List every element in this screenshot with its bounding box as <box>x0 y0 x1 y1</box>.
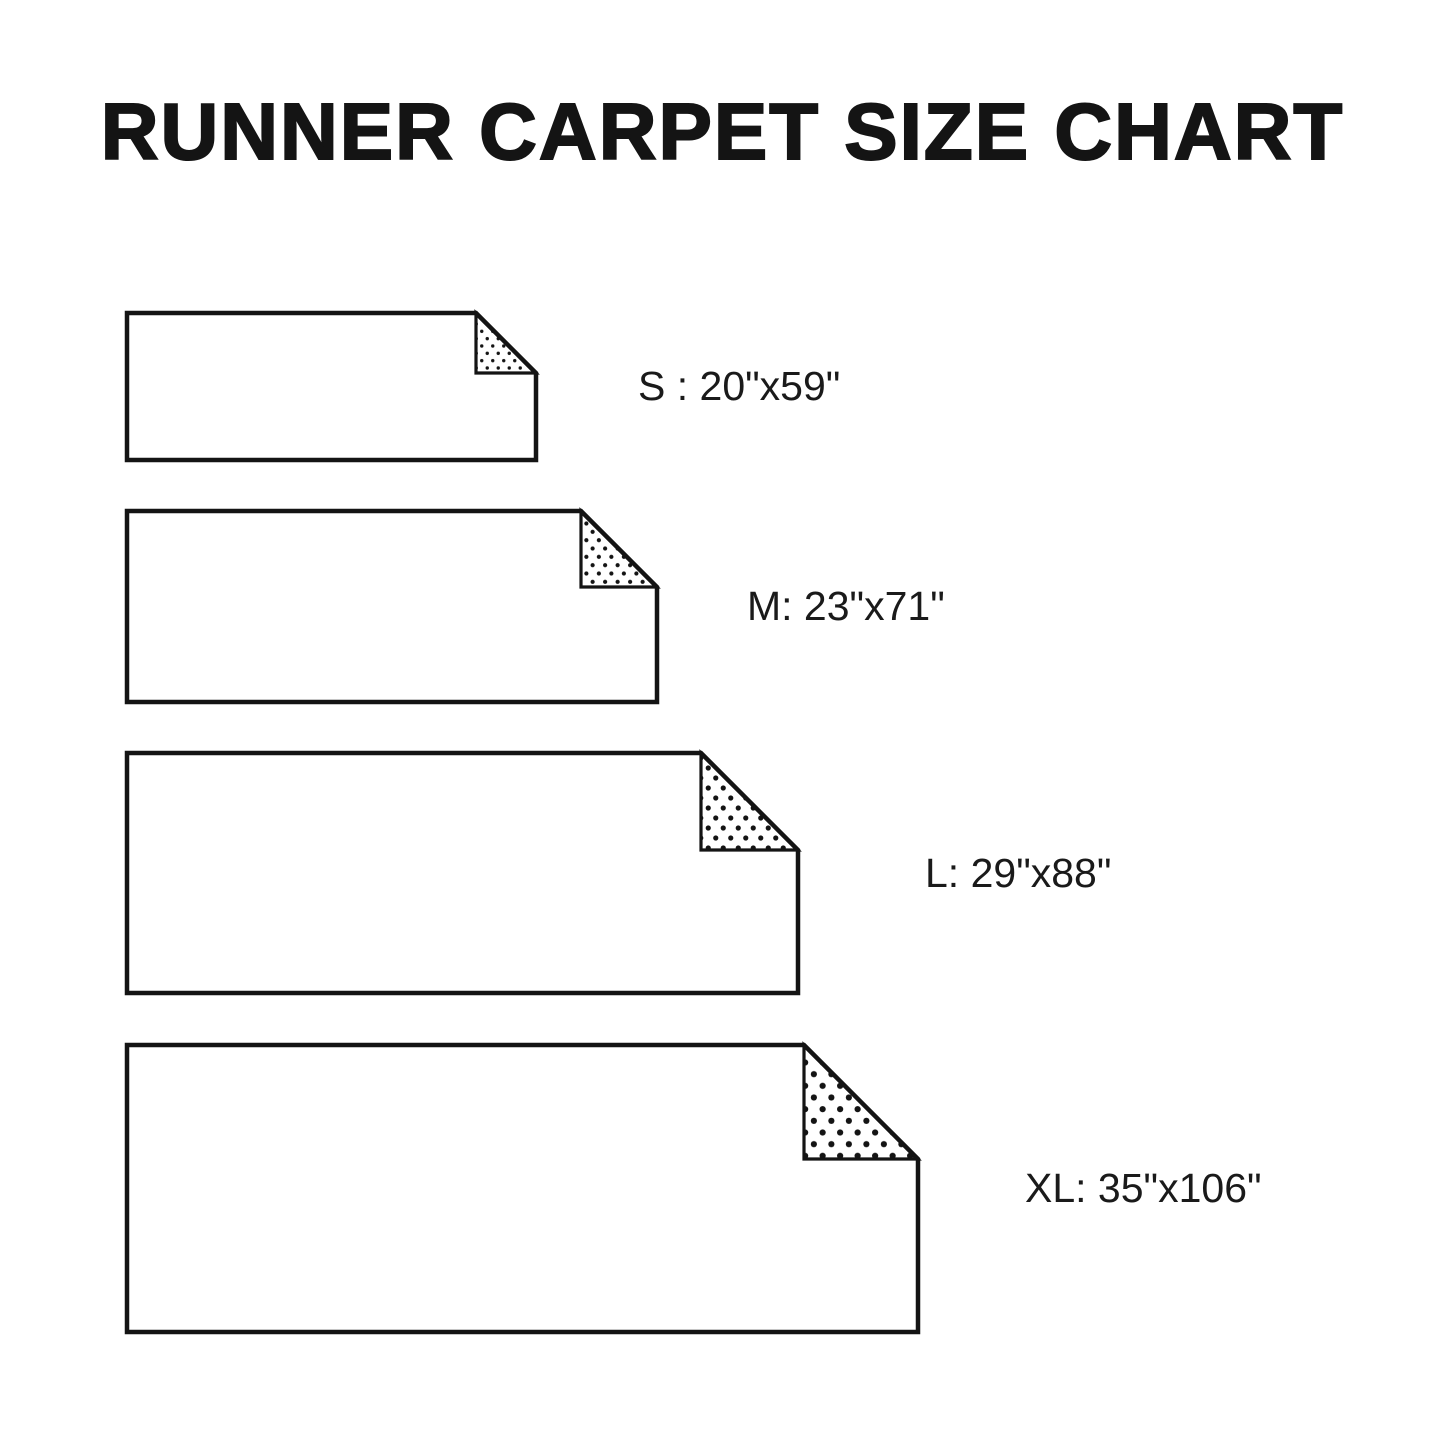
rug-label-s: S : 20"x59" <box>638 362 840 410</box>
rug-outline <box>127 1045 918 1332</box>
rug-outline <box>127 753 798 993</box>
page-title: RUNNER CARPET SIZE CHART <box>0 92 1445 172</box>
folded-corner-icon <box>581 511 657 587</box>
rug-shape-s <box>127 313 536 460</box>
size-chart-canvas: RUNNER CARPET SIZE CHART S : 20"x59" M: … <box>0 0 1445 1445</box>
rug-label-xl: XL: 35"x106" <box>1025 1164 1262 1212</box>
rug-label-m: M: 23"x71" <box>747 582 945 630</box>
rug-outline <box>127 511 657 702</box>
rug-shape-m <box>127 511 657 702</box>
folded-corner-icon <box>701 753 798 850</box>
folded-corner-icon <box>476 313 536 373</box>
folded-corner-icon <box>804 1045 918 1159</box>
rug-shape-l <box>127 753 798 993</box>
rug-label-l: L: 29"x88" <box>925 849 1111 897</box>
rug-shape-xl <box>127 1045 918 1332</box>
